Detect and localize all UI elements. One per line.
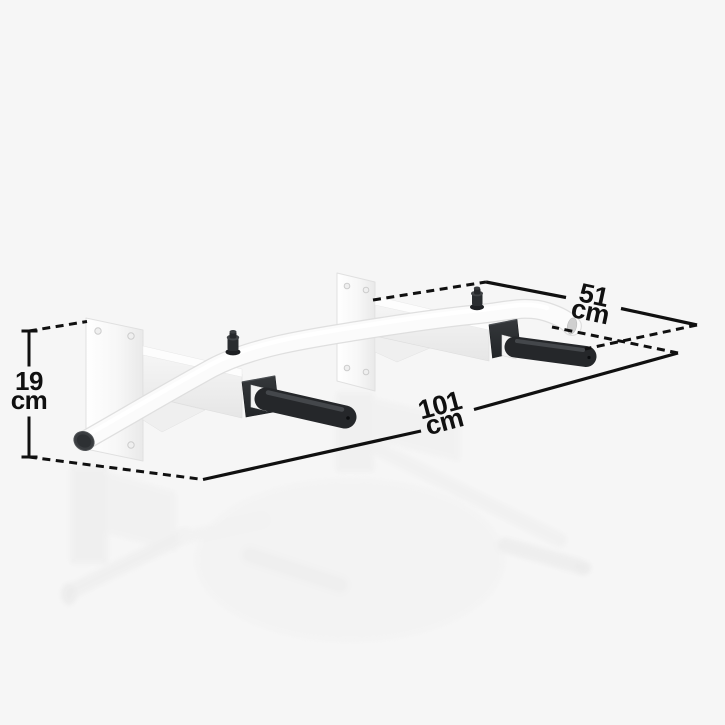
screw-hole xyxy=(95,328,101,334)
screw-hole xyxy=(128,442,134,448)
adjustment-bolt-left xyxy=(226,330,241,355)
screw-hole xyxy=(363,287,369,293)
product-dimension-illustration: 19 cm 51 cm 101 cm xyxy=(0,0,725,725)
grip-handle-left xyxy=(242,376,350,420)
adjustment-bolt-right xyxy=(470,287,484,311)
screw-hole xyxy=(344,365,350,371)
product-render xyxy=(0,0,725,725)
dimension-label-height: 19 cm xyxy=(1,371,57,410)
screw-hole xyxy=(128,333,134,339)
dimension-unit: cm xyxy=(1,391,57,410)
screw-hole xyxy=(363,369,369,375)
screw-hole xyxy=(344,283,350,289)
